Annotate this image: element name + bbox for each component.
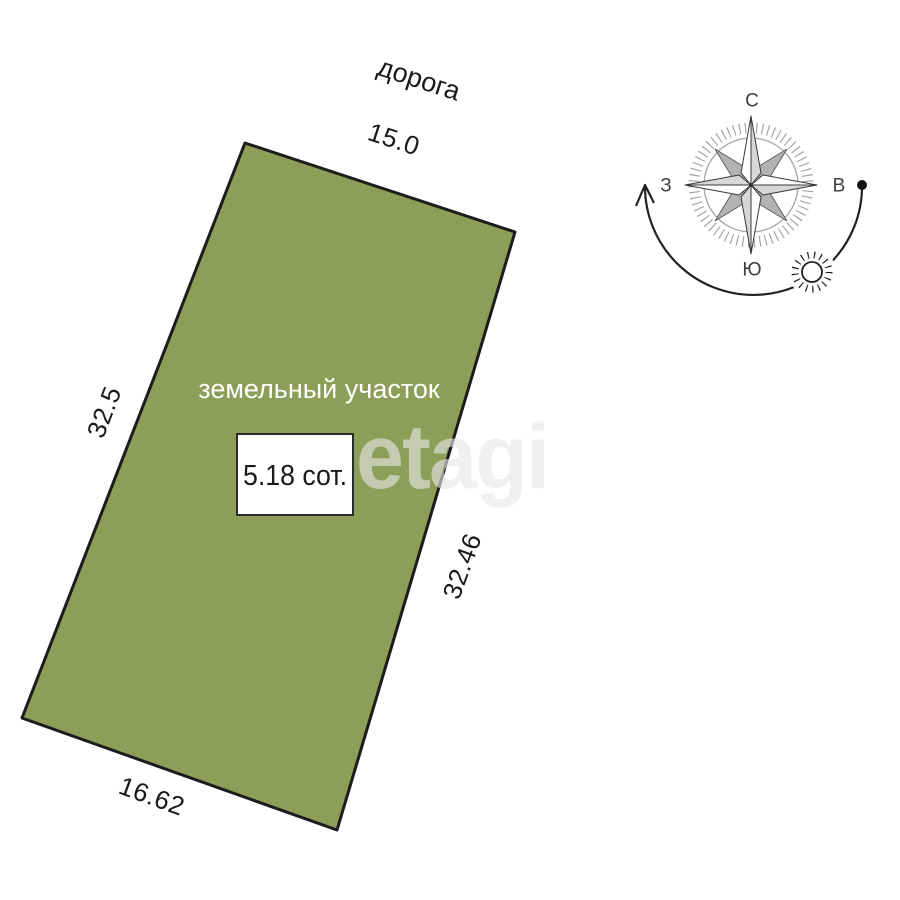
land-plot-plan: etagi дорога 15.0 32.5 32.46 16.62 земел…	[0, 0, 900, 900]
parcel-title: земельный участок	[198, 374, 440, 404]
watermark-text: etagi	[356, 406, 548, 508]
dimension-right-label: 32.46	[436, 529, 487, 603]
compass-center-dot	[749, 183, 753, 187]
compass-east-label: В	[833, 176, 846, 197]
area-value: 5.18 сот.	[243, 460, 347, 492]
dimension-top-label: 15.0	[364, 117, 423, 162]
road-label: дорога	[374, 52, 465, 107]
compass-south-label: Ю	[742, 260, 761, 281]
sun-path-start-dot	[857, 180, 867, 190]
dimension-bottom-label: 16.62	[115, 770, 189, 821]
compass-north-label: С	[745, 91, 759, 112]
sun-icon	[788, 248, 836, 296]
dimension-left-label: 32.5	[81, 382, 128, 442]
plan-drawing: etagi дорога 15.0 32.5 32.46 16.62 земел…	[0, 0, 900, 900]
compass-rose-icon	[685, 116, 817, 254]
compass-west-label: З	[660, 176, 671, 197]
